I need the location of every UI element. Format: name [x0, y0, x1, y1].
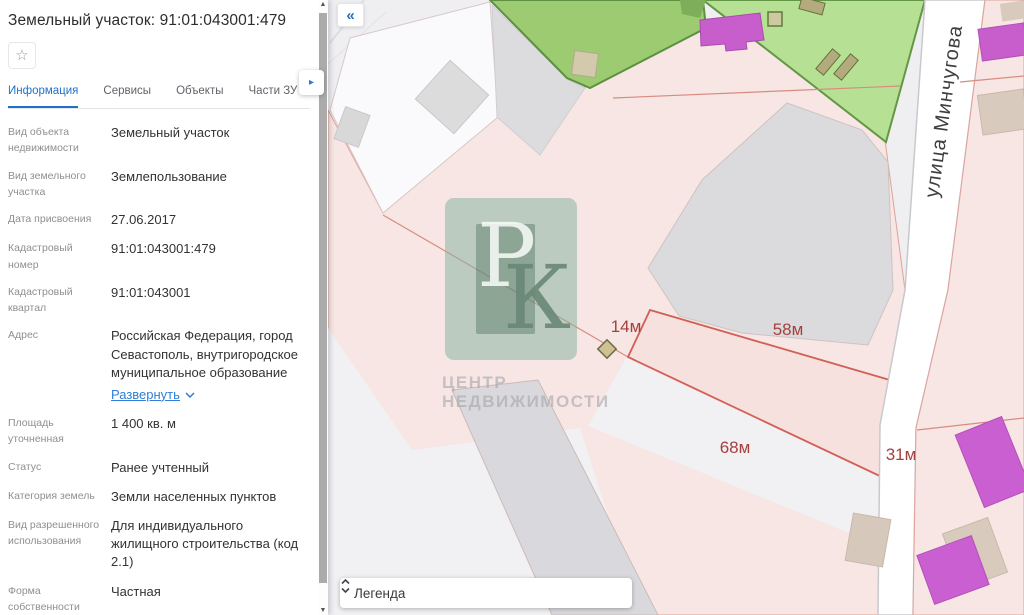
- parcel-info-panel: Земельный участок: 91:01:043001:479 ☆ Ин…: [0, 0, 328, 615]
- field-value-text: Частная: [111, 584, 161, 599]
- field-value: Земли населенных пунктов: [111, 488, 310, 506]
- field-label: Статус: [8, 459, 111, 477]
- measurement-label: 14м: [611, 317, 642, 336]
- field-row: Форма собственности Частная: [8, 583, 310, 615]
- tab-bar: Информация Сервисы Объекты Части ЗУ Сост: [8, 79, 310, 109]
- field-value-text: 27.06.2017: [111, 212, 176, 227]
- measurement-label: 58м: [773, 320, 804, 339]
- field-value: 91:01:043001:479: [111, 240, 310, 273]
- measurement-label: 68м: [720, 438, 751, 457]
- field-label: Кадастровый номер: [8, 240, 111, 273]
- field-row: Адрес Российская Федерация, город Севаст…: [8, 327, 310, 404]
- field-value-text: Ранее учтенный: [111, 460, 209, 475]
- field-value: 91:01:043001: [111, 284, 310, 317]
- chevron-up-down-icon: [340, 578, 351, 594]
- double-chevron-left-icon: «: [346, 7, 354, 24]
- building-beige: [1000, 0, 1024, 21]
- field-value-text: Российская Федерация, город Севастополь,…: [111, 328, 298, 379]
- legend-toggle[interactable]: Легенда: [340, 578, 632, 608]
- field-label: Кадастровый квартал: [8, 284, 111, 317]
- field-row: Вид земельного участка Землепользование: [8, 168, 310, 201]
- tab[interactable]: Объекты: [176, 79, 223, 109]
- field-value: Ранее учтенный: [111, 459, 310, 477]
- field-row: Статус Ранее учтенный: [8, 459, 310, 477]
- field-label: Категория земель: [8, 488, 111, 506]
- map-layers: 14м 58м 68м 31м улица Минчугова: [328, 0, 1024, 615]
- tab[interactable]: Части ЗУ: [249, 79, 298, 109]
- field-row: Вид разрешенного использования Для индив…: [8, 517, 310, 572]
- scrollbar-thumb[interactable]: [319, 13, 327, 583]
- scroll-up-icon[interactable]: ▲: [318, 1, 328, 8]
- collapse-panel-button[interactable]: «: [337, 3, 364, 27]
- building-beige: [977, 89, 1024, 135]
- field-value: Землепользование: [111, 168, 310, 201]
- building-magenta: [978, 23, 1024, 61]
- field-row: Категория земель Земли населенных пункто…: [8, 488, 310, 506]
- field-row: Площадь уточненная 1 400 кв. м: [8, 415, 310, 448]
- field-label: Вид разрешенного использования: [8, 517, 111, 572]
- field-label: Вид земельного участка: [8, 168, 111, 201]
- page-title: Земельный участок: 91:01:043001:479: [8, 12, 310, 30]
- map-canvas[interactable]: 14м 58м 68м 31м улица Минчугова « Р К ЦЕ…: [328, 0, 1024, 615]
- field-value: Для индивидуального жилищного строительс…: [111, 517, 310, 572]
- star-icon: ☆: [15, 47, 28, 64]
- field-value-text: Земельный участок: [111, 125, 229, 140]
- field-value: Частная: [111, 583, 310, 615]
- field-value-text: 91:01:043001: [111, 285, 191, 300]
- field-row: Кадастровый номер 91:01:043001:479: [8, 240, 310, 273]
- field-value: Земельный участок: [111, 124, 310, 157]
- field-value: 27.06.2017: [111, 211, 310, 229]
- caret-right-icon: ▸: [309, 77, 314, 88]
- building-tan: [571, 50, 598, 77]
- tab[interactable]: Сервисы: [103, 79, 151, 109]
- field-value: 1 400 кв. м: [111, 415, 310, 448]
- measurement-label: 31м: [886, 445, 917, 464]
- field-label: Дата присвоения: [8, 211, 111, 229]
- legend-label: Легенда: [354, 586, 405, 601]
- field-row: Кадастровый квартал 91:01:043001: [8, 284, 310, 317]
- building-beige: [845, 513, 891, 567]
- expand-link-label: Развернуть: [111, 386, 180, 404]
- field-value-text: 1 400 кв. м: [111, 416, 176, 431]
- field-label: Адрес: [8, 327, 111, 404]
- parcel-attributes: Вид объекта недвижимости Земельный участ…: [8, 124, 310, 615]
- favorite-button[interactable]: ☆: [8, 42, 36, 69]
- scroll-down-icon[interactable]: ▼: [318, 607, 328, 614]
- field-value: Российская Федерация, город Севастополь,…: [111, 327, 310, 404]
- field-value-text: 91:01:043001:479: [111, 241, 216, 256]
- field-value-text: Для индивидуального жилищного строительс…: [111, 518, 298, 569]
- tab[interactable]: Информация: [8, 79, 78, 109]
- building-khaki-small: [768, 12, 782, 26]
- field-value-text: Землепользование: [111, 169, 227, 184]
- cadastral-map-app: Земельный участок: 91:01:043001:479 ☆ Ин…: [0, 0, 1024, 615]
- tabs-overflow-button[interactable]: ▸: [299, 70, 324, 95]
- address-expand-link[interactable]: Развернуть: [111, 386, 195, 404]
- field-row: Вид объекта недвижимости Земельный участ…: [8, 124, 310, 157]
- field-row: Дата присвоения 27.06.2017: [8, 211, 310, 229]
- field-label: Форма собственности: [8, 583, 111, 615]
- field-label: Вид объекта недвижимости: [8, 124, 111, 157]
- chevron-down-icon: [185, 392, 195, 398]
- field-label: Площадь уточненная: [8, 415, 111, 448]
- field-value-text: Земли населенных пунктов: [111, 489, 276, 504]
